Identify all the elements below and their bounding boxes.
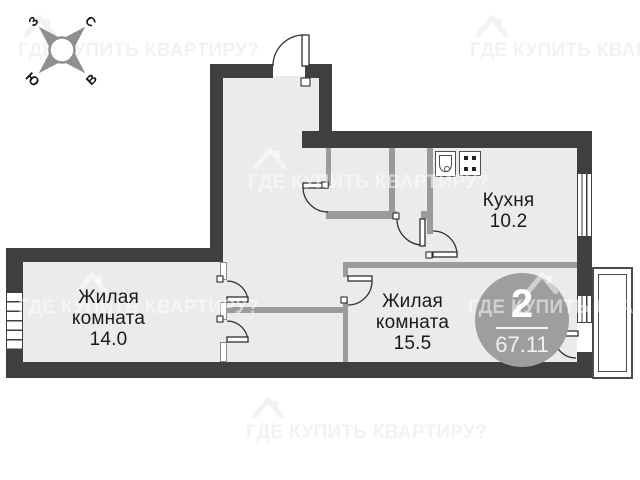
wall-left-top [6, 248, 222, 262]
label-room2: Жилая комната 15.5 [340, 291, 485, 354]
room2-name-line1: Жилая [340, 291, 485, 312]
entrance-door-arc [273, 35, 304, 66]
watermark-text: ГДЕ КУПИТЬ КВАРТИРУ? [246, 422, 487, 444]
room1-name-line1: Жилая [36, 287, 181, 308]
badge-divider [496, 327, 548, 329]
watermark: ГДЕ КУПИТЬ КВАРТИРУ? [468, 269, 640, 319]
total-area: 67.11 [495, 333, 548, 357]
wall-bath-bottom-a [326, 211, 397, 219]
wall-right-1 [577, 148, 592, 173]
partition-room1-c [220, 342, 227, 362]
house-icon [252, 394, 284, 419]
watermark-text: ГДЕ КУПИТЬ КВАРТИРУ? [468, 297, 640, 319]
watermark: ГДЕ КУПИТЬ КВАРТИРУ? [246, 394, 487, 444]
room2-area: 15.5 [340, 333, 485, 354]
wall-room2-top [343, 262, 577, 268]
house-icon [254, 144, 286, 169]
room1-area: 14.0 [36, 329, 181, 350]
floor-plan: 2 67.11 ГДЕ КУПИТЬ КВАРТИРУ? ГДЕ КУПИТЬ … [0, 0, 640, 480]
label-room1: Жилая комната 14.0 [36, 287, 181, 350]
kitchen-area: 10.2 [446, 211, 571, 232]
wall-hall-right [319, 64, 332, 134]
wall-room2-left-a [343, 262, 348, 277]
watermark: ГДЕ КУПИТЬ КВАРТИРУ? [248, 144, 489, 194]
house-icon [526, 269, 558, 294]
watermark: ГДЕ КУПИТЬ КВАРТИРУ? [470, 12, 640, 62]
wall-bottom [6, 362, 592, 378]
kitchen-name: Кухня [446, 190, 571, 211]
house-icon [476, 12, 508, 37]
window-kitchen [577, 173, 592, 237]
compass-rose-icon: З С В Ю [12, 2, 112, 102]
room1-name-line2: комната [36, 308, 181, 329]
entrance-door-leaf [302, 35, 309, 66]
room2-name-line2: комната [340, 312, 485, 333]
watermark-text: ГДЕ КУПИТЬ КВАРТИРУ? [470, 40, 640, 62]
label-kitchen: Кухня 10.2 [446, 190, 571, 232]
wall-left-2 [6, 350, 23, 378]
wall-hall-left [210, 64, 223, 262]
